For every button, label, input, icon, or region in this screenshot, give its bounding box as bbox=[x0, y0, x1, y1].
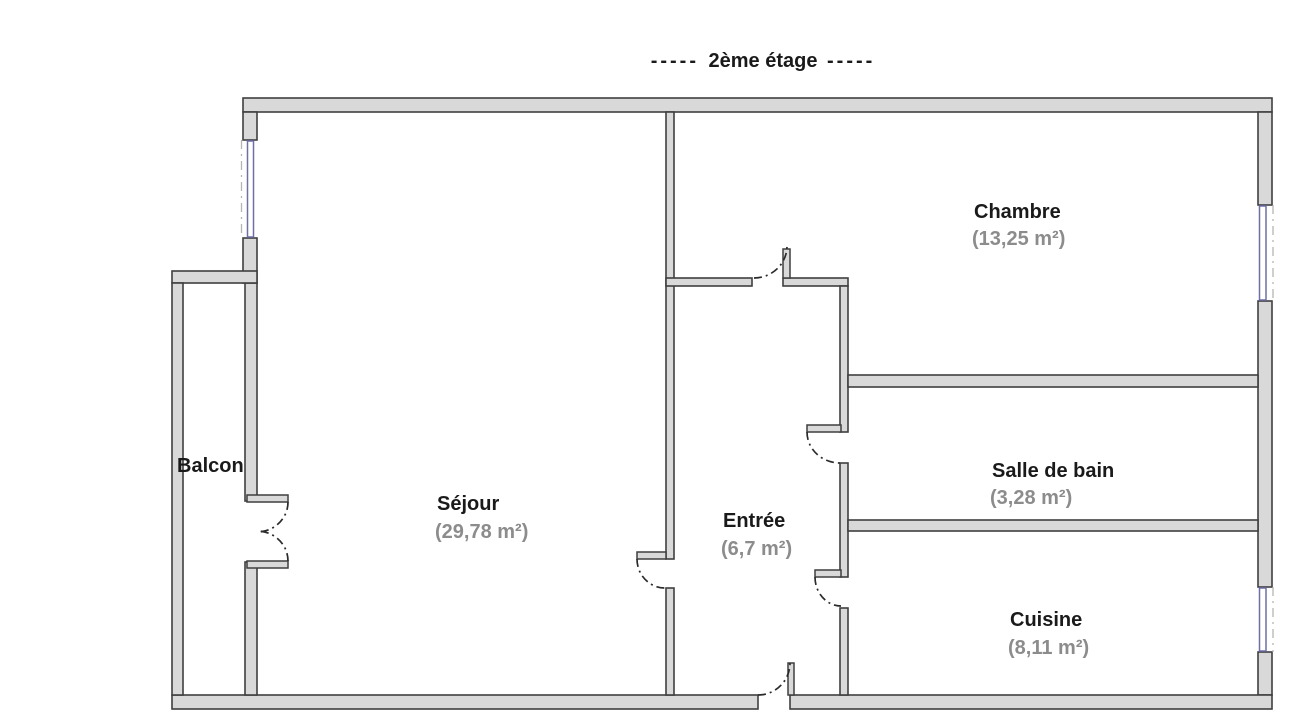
room-label-salle-de-bain: Salle de bain bbox=[992, 460, 1114, 482]
doors bbox=[247, 246, 841, 695]
wall-entree-east-upper bbox=[840, 286, 848, 432]
wall-entree-east-lower bbox=[840, 608, 848, 695]
door-leaf bbox=[815, 570, 841, 577]
wall-entree-east-middle bbox=[840, 463, 848, 577]
door-swing-arc-bottom bbox=[257, 531, 288, 561]
window-sejour bbox=[242, 140, 254, 238]
room-label-chambre: Chambre bbox=[974, 201, 1061, 223]
wall-chambre-bathroom bbox=[848, 375, 1258, 387]
door-salle-de-bain bbox=[807, 425, 841, 463]
door-leaf-top bbox=[247, 495, 288, 502]
door-sejour bbox=[637, 552, 666, 588]
window-glass-pane bbox=[248, 141, 254, 237]
door-swing-arc bbox=[637, 559, 666, 588]
wall-bathroom-kitchen bbox=[848, 520, 1258, 531]
wall-exterior-right-middle bbox=[1258, 301, 1272, 587]
wall-sejour-east-lower bbox=[666, 588, 674, 695]
labels: ----- 2ème étage ----- Chambre (13,25 m²… bbox=[177, 50, 1114, 659]
wall-chambre-entree-left bbox=[666, 278, 752, 286]
wall-balcony-top bbox=[172, 271, 257, 283]
wall-exterior-left-upper bbox=[243, 112, 257, 140]
wall-sejour-balcony-lower bbox=[245, 562, 257, 695]
door-leaf-bottom bbox=[247, 561, 288, 568]
window-glass-pane bbox=[1260, 206, 1267, 300]
door-swing-arc bbox=[758, 663, 790, 695]
room-area-chambre: (13,25 m²) bbox=[972, 228, 1065, 250]
door-swing-arc-top bbox=[257, 502, 288, 532]
room-area-sejour: (29,78 m²) bbox=[435, 521, 528, 543]
room-label-sejour: Séjour bbox=[437, 493, 499, 515]
door-cuisine bbox=[815, 570, 841, 606]
windows bbox=[242, 140, 1274, 652]
title-dashes-left: ----- bbox=[651, 50, 699, 72]
room-label-entree: Entrée bbox=[723, 510, 785, 532]
wall-sejour-balcony-upper bbox=[245, 283, 257, 501]
title-dashes-right: ----- bbox=[827, 50, 875, 72]
door-swing-arc bbox=[815, 577, 841, 606]
door-entrance bbox=[758, 663, 794, 695]
door-chambre bbox=[754, 246, 790, 278]
wall-chambre-entree-right bbox=[783, 278, 848, 286]
wall-exterior-bottom-right bbox=[790, 695, 1272, 709]
door-leaf bbox=[788, 663, 794, 695]
wall-balcony-left bbox=[172, 283, 183, 695]
door-swing-arc bbox=[754, 246, 787, 278]
wall-exterior-right-lower bbox=[1258, 652, 1272, 695]
window-chambre bbox=[1260, 205, 1274, 301]
exterior-walls bbox=[172, 98, 1272, 709]
interior-walls bbox=[666, 112, 1258, 695]
room-area-salle-de-bain: (3,28 m²) bbox=[990, 487, 1072, 509]
wall-exterior-top bbox=[243, 98, 1272, 112]
room-area-cuisine: (8,11 m²) bbox=[1008, 637, 1089, 659]
door-leaf bbox=[637, 552, 666, 559]
room-area-entree: (6,7 m²) bbox=[721, 538, 792, 560]
door-balcony-french bbox=[247, 495, 288, 568]
page-title: 2ème étage bbox=[709, 50, 818, 72]
window-glass-pane bbox=[1260, 588, 1267, 651]
wall-sejour-east-upper bbox=[666, 112, 674, 559]
wall-exterior-right-upper bbox=[1258, 112, 1272, 205]
room-label-cuisine: Cuisine bbox=[1010, 609, 1082, 631]
door-leaf bbox=[807, 425, 841, 432]
room-label-balcon: Balcon bbox=[177, 455, 244, 477]
floor-plan-page: ----- 2ème étage ----- Chambre (13,25 m²… bbox=[0, 0, 1302, 718]
wall-exterior-bottom-left bbox=[172, 695, 758, 709]
door-swing-arc bbox=[807, 432, 840, 463]
floor-plan-canvas: ----- 2ème étage ----- Chambre (13,25 m²… bbox=[0, 0, 1302, 718]
window-cuisine bbox=[1260, 587, 1274, 652]
